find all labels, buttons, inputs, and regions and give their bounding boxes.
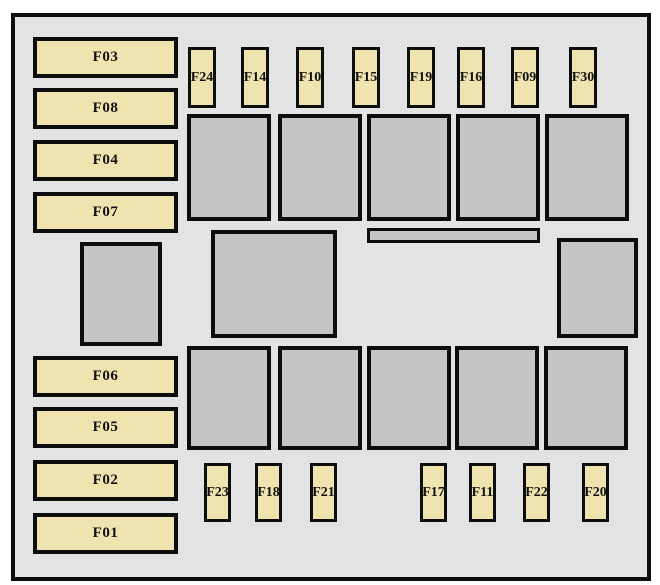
fuse-f10: F10 [296,47,324,108]
fuse-label: F24 [191,70,214,86]
connector-bar [367,228,540,243]
relay-box [278,114,362,221]
relay-box [455,346,539,450]
fuse-label: F02 [93,472,119,489]
right-module-box [557,238,638,338]
fuse-label: F17 [422,485,445,501]
fuse-label: F04 [93,152,119,169]
fuse-label: F15 [355,70,378,86]
fuse-label: F21 [312,485,335,501]
fuse-f08: F08 [33,88,178,129]
fuse-label: F08 [93,100,119,117]
relay-box [278,346,362,450]
fuse-label: F01 [93,525,119,542]
fuse-f30: F30 [569,47,597,108]
fuse-label: F05 [93,419,119,436]
fuse-box-diagram: F03 F08 F04 F07 F06 F05 F02 F01 F24 F14 … [0,0,660,585]
fuse-f01: F01 [33,513,178,554]
fuse-label: F19 [410,70,433,86]
fuse-f18: F18 [255,463,282,522]
fuse-f03: F03 [33,37,178,78]
fuse-f22: F22 [523,463,550,522]
fuse-f16: F16 [457,47,485,108]
fuse-f07: F07 [33,192,178,233]
fuse-f06: F06 [33,356,178,397]
relay-box [456,114,540,221]
fuse-label: F14 [244,70,267,86]
relay-box [367,114,451,221]
fuse-label: F30 [572,70,595,86]
fuse-f15: F15 [352,47,380,108]
relay-box [545,114,629,221]
center-module-box [211,230,337,338]
fuse-f23: F23 [204,463,231,522]
fuse-label: F22 [525,485,548,501]
relay-box [187,114,271,221]
fuse-f24: F24 [188,47,216,108]
fuse-f20: F20 [582,463,609,522]
fuse-f02: F02 [33,460,178,501]
fuse-f14: F14 [241,47,269,108]
fuse-label: F03 [93,49,119,66]
fuse-label: F10 [299,70,322,86]
fuse-f04: F04 [33,140,178,181]
fuse-f09: F09 [511,47,539,108]
relay-box [187,346,271,450]
fuse-label: F23 [206,485,229,501]
fuse-label: F09 [514,70,537,86]
fuse-f17: F17 [420,463,447,522]
fuse-label: F18 [257,485,280,501]
fuse-f21: F21 [310,463,337,522]
fuse-f19: F19 [407,47,435,108]
relay-box [544,346,628,450]
fuse-label: F07 [93,204,119,221]
fuse-label: F20 [584,485,607,501]
fuse-label: F16 [460,70,483,86]
fuse-label: F11 [472,485,494,501]
fuse-label: F06 [93,368,119,385]
left-module-box [80,242,162,346]
relay-box [367,346,451,450]
fuse-f05: F05 [33,407,178,448]
fuse-f11: F11 [469,463,496,522]
